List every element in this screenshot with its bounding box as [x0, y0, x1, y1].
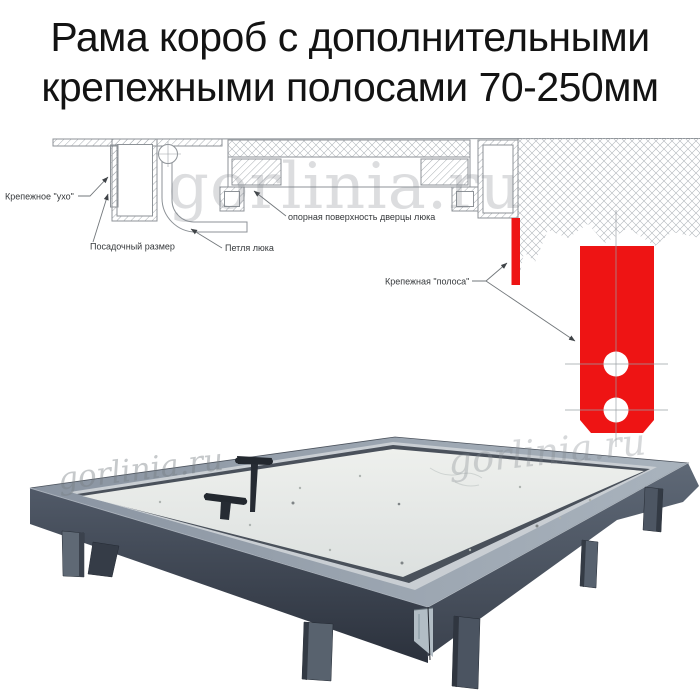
hatch-door-section [220, 140, 478, 211]
page-title-line2: крепежными полосами 70-250мм [0, 62, 700, 112]
page-title-line1: Рама короб с дополнительными [0, 12, 700, 62]
leg-strip [88, 542, 119, 577]
fastening-ear-plate [111, 145, 119, 207]
right-frame-profile [478, 140, 518, 218]
label-fastening-strip: Крепежная "полоса" [385, 277, 469, 287]
product-card: Рама короб с дополнительными крепежными … [0, 0, 700, 700]
door-top-slab [228, 140, 470, 157]
technical-diagram: Крепежное "ухо" Посадочный размер Петля … [0, 125, 700, 455]
label-hinge: Петля люка [225, 243, 274, 253]
page-title: Рама короб с дополнительными крепежными … [0, 12, 700, 112]
label-fastening-ear: Крепежное "ухо" [5, 192, 74, 202]
label-door-support: опорная поверхность дверцы люка [288, 212, 435, 222]
left-frame-profile [53, 139, 222, 221]
label-mounting-size: Посадочный размер [90, 242, 175, 252]
strip-in-wall [512, 218, 521, 285]
product-photo [0, 430, 700, 700]
